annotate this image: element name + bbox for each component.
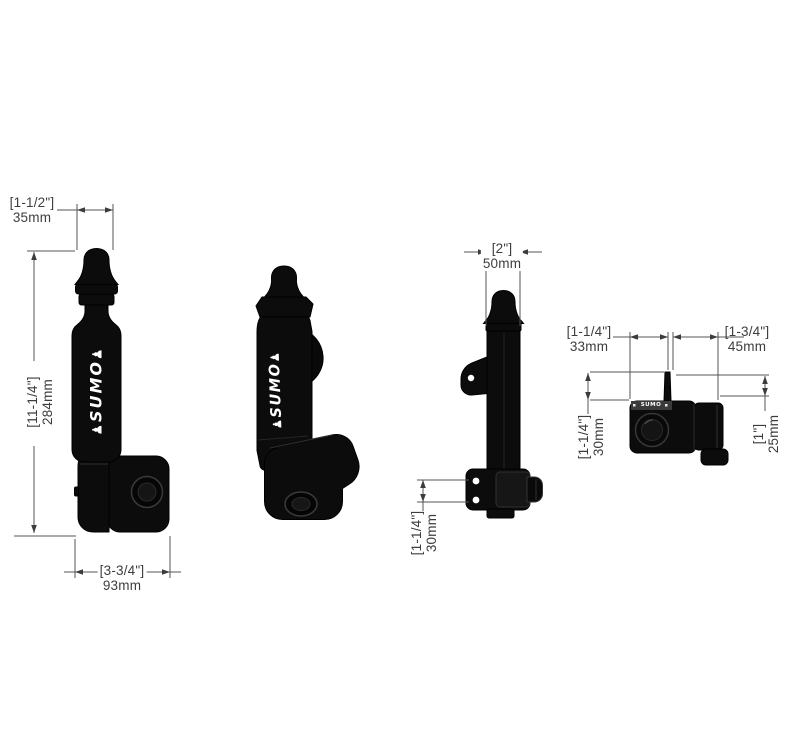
dimension-label-v4-left: [1-1/4"] 30mm: [576, 415, 606, 460]
sumo-wrestler-icon: ♟: [270, 417, 284, 429]
brand-wordmark: SUMO: [87, 360, 106, 422]
clamp-body-cylinder: [694, 403, 723, 450]
knob-flange-upper: [76, 284, 118, 294]
drawing-svg: [0, 0, 800, 752]
plate-hole-bottom: [473, 497, 480, 504]
dimension-label-v1-bottom: [3-3/4"] 93mm: [98, 563, 147, 593]
dimension-inches: [1-1/4"]: [576, 415, 591, 460]
jaw-fin: [664, 372, 671, 401]
dimension-inches: [1-1/4"]: [409, 511, 424, 556]
knob-flange-lower: [79, 294, 114, 305]
knob-collar: [256, 297, 313, 317]
dimension-mm: 93mm: [98, 578, 147, 593]
plate-hole-top: [473, 478, 480, 485]
cylinder-nub: [701, 449, 728, 465]
dimension-label-v4-top-left: [1-1/4"] 33mm: [567, 324, 612, 354]
serration-tick-right: [665, 404, 668, 407]
dim-lines-v4-top-left: [613, 332, 668, 399]
dimension-label-v4-top-right: [1-3/4"] 45mm: [725, 324, 770, 354]
brand-wordmark: SUMO: [267, 362, 285, 418]
top-knob: [484, 291, 524, 324]
dim-lines-v3-bottom: [417, 480, 469, 511]
dimension-label-v3-bottom: [1-1/4"] 30mm: [409, 511, 439, 556]
clamp-block: [496, 472, 530, 507]
dimension-inches: [1"]: [751, 415, 766, 453]
dimension-label-v1-height: [11-1/4"] 284mm: [25, 376, 55, 427]
fin-hole: [468, 375, 474, 381]
dimension-inches: [11-1/4"]: [25, 376, 40, 427]
top-view-product: [630, 372, 728, 465]
sumo-logo-front-view: ♟SUMO♟: [87, 346, 106, 435]
sumo-wrestler-icon: ♟: [268, 350, 282, 362]
dimension-label-v4-right: [1"] 25mm: [751, 415, 781, 453]
dimension-mm: 30mm: [424, 511, 439, 556]
dimension-inches: [1-3/4"]: [725, 324, 770, 339]
clamp-knob-side: [527, 477, 543, 502]
dim-lines-v1-top: [57, 204, 113, 250]
track-fin: [461, 357, 487, 395]
sumo-wrestler-icon: ♟: [91, 422, 106, 435]
serration-tick-left: [633, 404, 636, 407]
dimension-mm: 50mm: [481, 256, 523, 271]
dimension-inches: [1-1/4"]: [567, 324, 612, 339]
dimension-mm: 25mm: [766, 415, 781, 453]
sumo-logo-top-view: SUMO: [641, 402, 662, 408]
top-knob: [75, 249, 118, 285]
dimension-mm: 35mm: [4, 210, 60, 225]
block-side-nub: [75, 487, 79, 496]
dimension-inches: [1-1/2"]: [4, 195, 60, 210]
dimension-inches: [3-3/4"]: [98, 563, 147, 578]
dimension-label-v3-top: [2"] 50mm: [481, 241, 523, 271]
mount-block: [78, 461, 109, 532]
brand-wordmark: SUMO: [641, 402, 662, 408]
dimension-mm: 33mm: [567, 339, 612, 354]
technical-drawing-canvas: [1-1/2"] 35mm [11-1/4"] 284mm [3-3/4"] 9…: [0, 0, 800, 752]
dimension-mm: 30mm: [591, 415, 606, 460]
dimension-mm: 45mm: [725, 339, 770, 354]
clamp-knob-center: [292, 498, 310, 511]
dimension-inches: [2"]: [481, 241, 523, 256]
clamp-knob-center: [138, 483, 156, 501]
dimension-label-v1-top: [1-1/2"] 35mm: [4, 195, 60, 225]
plate-foot: [487, 509, 514, 518]
sumo-wrestler-icon: ♟: [91, 346, 106, 359]
side-view-product: [461, 291, 543, 519]
dimension-mm: 284mm: [40, 376, 55, 427]
sumo-logo-perspective-view: ♟SUMO♟: [267, 350, 286, 429]
top-knob: [265, 266, 304, 297]
clamp-knob-dome: [642, 420, 663, 441]
